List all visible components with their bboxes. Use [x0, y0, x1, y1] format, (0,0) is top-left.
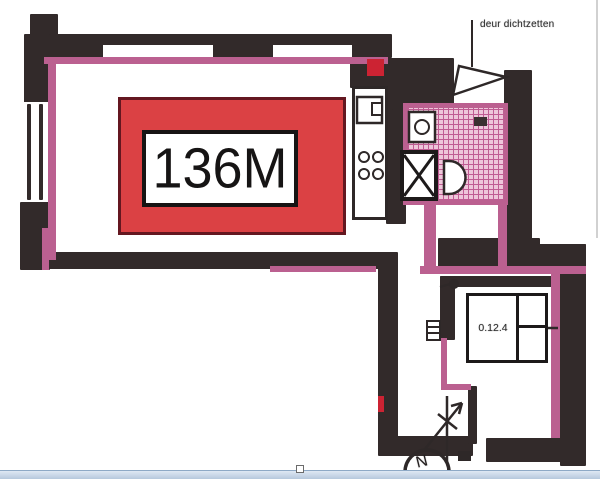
plan-linework [0, 0, 600, 479]
washbasin-icon [409, 112, 435, 142]
door-swing-icon [453, 66, 506, 95]
resize-handle[interactable] [296, 465, 304, 473]
floorplan-image[interactable]: 136M [0, 0, 600, 479]
bathroom-vent-icon [474, 117, 487, 126]
radiator-icon [427, 321, 440, 340]
room-number-label: 0.12.4 [468, 322, 518, 334]
room-highlight-label-box: 136M [142, 130, 298, 207]
door-handle-icon [440, 280, 458, 288]
shower-tray-icon [402, 152, 436, 199]
toilet-icon [444, 161, 466, 194]
door-note-text: deur dichtzetten [480, 19, 598, 30]
sink-icon [357, 97, 382, 123]
stove-burners-icon [359, 152, 383, 179]
room-highlight-label: 136M [152, 136, 287, 200]
bottom-black-mark [458, 451, 471, 461]
